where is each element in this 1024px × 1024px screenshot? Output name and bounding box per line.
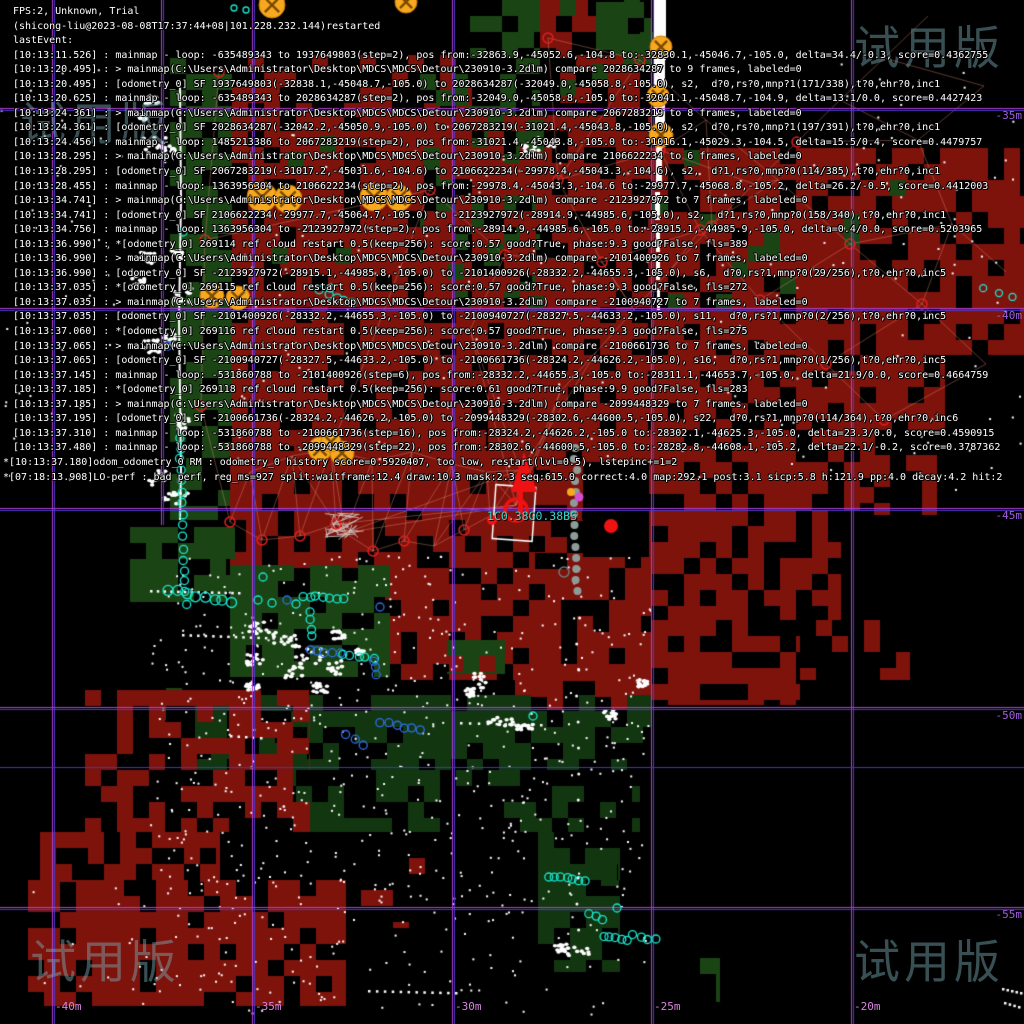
log-console: FPS:2, Unknown, Trial(shicong-liu@2023-0… <box>3 5 1024 485</box>
log-line: [10:13:36.990] : *[odometry_0] 269114 re… <box>3 238 1024 253</box>
log-line: [10:13:37.195] : [odometry_0] SF -210066… <box>3 412 1024 427</box>
log-line: [10:13:37.480] : mainmap - loop: -531860… <box>3 441 1024 456</box>
v-grid-label: -35m <box>255 1001 282 1012</box>
log-line: [10:13:20.495] : > mainmap(C:\Users\Admi… <box>3 63 1024 78</box>
log-line: [10:13:24.361] : [odometry_0] SF 2028634… <box>3 121 1024 136</box>
log-line: *[10:13:37.180]odom_odometry_0 RM : odom… <box>3 456 1024 471</box>
h-grid-label: -50m <box>996 710 1023 721</box>
log-line: FPS:2, Unknown, Trial <box>3 5 1024 20</box>
log-line: [10:13:24.361] : > mainmap(C:\Users\Admi… <box>3 107 1024 122</box>
v-grid-label: -25m <box>654 1001 681 1012</box>
log-line: [10:13:24.456] : mainmap - loop: 1485213… <box>3 136 1024 151</box>
log-line: (shicong-liu@2023-08-08T17:37:44+08|101.… <box>3 20 1024 35</box>
log-line: [10:13:37.185] : *[odometry_0] 269118 re… <box>3 383 1024 398</box>
slam-viewer-window: 试用版 试用版 试用版 试用版 FPS:2, Unknown, Trial(sh… <box>0 0 1024 1024</box>
log-line: [10:13:20.495] : [odometry_0] SF 1937649… <box>3 78 1024 93</box>
log-line: [10:13:37.310] : mainmap - loop: -531860… <box>3 427 1024 442</box>
robot-pose-label: 1C0.38G0.38BS <box>487 509 577 523</box>
log-line: [10:13:37.035] : *[odometry_0] 269115 re… <box>3 281 1024 296</box>
v-grid-label: -30m <box>455 1001 482 1012</box>
log-line: [10:13:37.145] : mainmap - loop: -531860… <box>3 369 1024 384</box>
log-line: [10:13:11.526] : mainmap - loop: -635489… <box>3 49 1024 64</box>
log-line: [10:13:28.295] : [odometry_0] SF 2067283… <box>3 165 1024 180</box>
log-line: [10:13:34.741] : [odometry_0] SF 2106622… <box>3 209 1024 224</box>
h-grid-label: -40m <box>996 310 1023 321</box>
log-line: *[07:18:13.908]LO-perf : bad perf, reg_m… <box>3 471 1024 486</box>
log-line: [10:13:37.185] : > mainmap(C:\Users\Admi… <box>3 398 1024 413</box>
log-line: [10:13:37.035] : [odometry_0] SF -210140… <box>3 310 1024 325</box>
log-line: [10:13:20.625] : mainmap - loop: -635489… <box>3 92 1024 107</box>
h-grid-label: -35m <box>996 110 1023 121</box>
log-line: [10:13:37.065] : > mainmap(C:\Users\Admi… <box>3 340 1024 355</box>
log-line: [10:13:37.060] : *[odometry_0] 269116 re… <box>3 325 1024 340</box>
h-grid-label: -55m <box>996 909 1023 920</box>
v-grid-label: -20m <box>854 1001 881 1012</box>
log-line: [10:13:37.035] : > mainmap(C:\Users\Admi… <box>3 296 1024 311</box>
v-grid-label: -40m <box>55 1001 82 1012</box>
log-line: [10:13:34.756] : mainmap - loop: 1363956… <box>3 223 1024 238</box>
log-line: [10:13:34.741] : > mainmap(C:\Users\Admi… <box>3 194 1024 209</box>
log-line: [10:13:36.990] : [odometry_0] SF -212392… <box>3 267 1024 282</box>
log-line: [10:13:37.065] : [odometry_0] SF -210094… <box>3 354 1024 369</box>
log-line: [10:13:28.295] : > mainmap(C:\Users\Admi… <box>3 150 1024 165</box>
h-grid-label: -45m <box>996 510 1023 521</box>
log-line: [10:13:36.990] : > mainmap(C:\Users\Admi… <box>3 252 1024 267</box>
log-line: lastEvent: <box>3 34 1024 49</box>
log-line: [10:13:28.455] : mainmap - loop: 1363956… <box>3 180 1024 195</box>
